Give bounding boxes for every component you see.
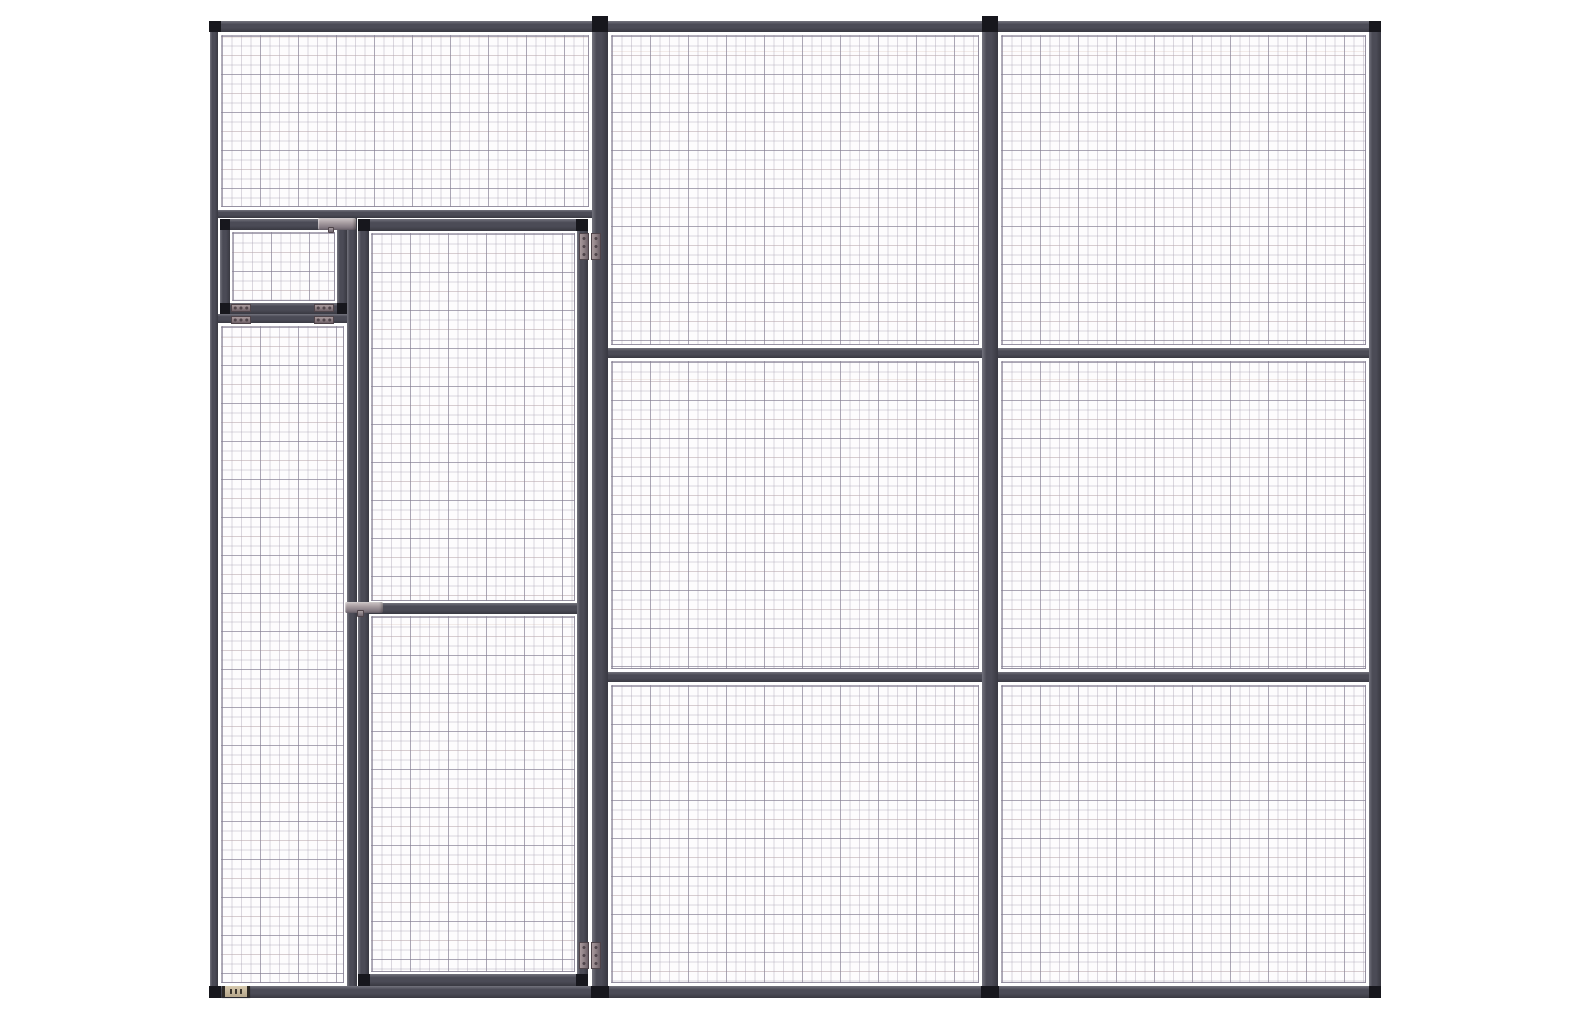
mesh-partition-scene: [0, 0, 1590, 1020]
right-bay-upper-rail: [998, 348, 1369, 358]
left-upright-post: [210, 21, 218, 998]
mid-bay-lower-rail: [608, 672, 982, 682]
hatch-right-hinge-leaf-b: [314, 316, 334, 324]
top-rail: [210, 21, 1381, 32]
door-right-stile: [577, 219, 588, 986]
hatch-bottom-right-corner-block: [337, 303, 347, 314]
hatch-right-hinge-leaf-a: [314, 304, 334, 312]
right-bay-bottom-mesh-panel: [1001, 685, 1366, 983]
hatch-mesh-panel: [232, 232, 335, 301]
bottom-rail: [210, 986, 1381, 998]
door-bottom-left-corner-block: [358, 974, 370, 986]
left-bay-top-mesh-panel: [221, 35, 589, 207]
mid-bay-upper-rail: [608, 348, 982, 358]
center-post-top-cap: [982, 16, 998, 32]
center-post-foot-block: [981, 986, 999, 998]
left-bay-transom-rail: [218, 210, 592, 218]
door-side-post: [592, 19, 608, 998]
mid-bay-bottom-mesh-panel: [611, 685, 979, 983]
door-post-foot-block: [591, 986, 609, 998]
door-bottom-hinge-leaf-b: [591, 942, 601, 969]
hatch-left-hinge-leaf-b: [231, 316, 251, 324]
hatch-left-hinge-leaf-a: [231, 304, 251, 312]
door-top-right-corner-block: [576, 219, 588, 231]
door-latch-knob: [357, 610, 364, 617]
hatch-right-hinge: [314, 304, 334, 324]
door-lower-mesh-panel: [371, 616, 575, 972]
door-top-hinge-leaf-b: [591, 233, 601, 260]
door-top-hinge-leaf-a: [579, 233, 589, 260]
right-bay-top-mesh-panel: [1001, 35, 1366, 345]
right-bay-middle-mesh-panel: [1001, 361, 1366, 669]
door-bottom-hinge-leaf-a: [579, 942, 589, 969]
door-upper-mesh-panel: [371, 233, 575, 601]
door-top-left-corner-block: [358, 219, 370, 231]
door-bottom-right-corner-block: [576, 974, 588, 986]
hatch-right-stile: [337, 219, 347, 314]
hatch-latch-knob: [328, 227, 334, 233]
center-post: [982, 19, 998, 998]
right-upright-post: [1369, 21, 1381, 998]
door-bottom-rail: [358, 974, 588, 986]
manufacturer-nameplate: [222, 986, 250, 997]
mid-bay-middle-mesh-panel: [611, 361, 979, 669]
bottom-left-corner-block: [209, 986, 221, 998]
bottom-right-corner-block: [1369, 986, 1381, 998]
door-latch-bolt: [345, 602, 383, 613]
hatch-top-left-corner-block: [220, 219, 230, 230]
door-post-top-cap: [592, 16, 608, 32]
top-right-corner-block: [1369, 21, 1381, 32]
left-column-mesh-panel: [221, 326, 344, 983]
door-bottom-hinge: [579, 942, 601, 969]
hatch-latch-bolt: [318, 218, 356, 230]
right-bay-lower-rail: [998, 672, 1369, 682]
door-mid-rail: [358, 603, 588, 614]
door-top-rail: [358, 219, 588, 231]
top-left-corner-block: [209, 21, 221, 32]
door-top-hinge: [579, 233, 601, 260]
hatch-left-stile: [220, 219, 230, 314]
mid-bay-top-mesh-panel: [611, 35, 979, 345]
hatch-bottom-left-corner-block: [220, 303, 230, 314]
hatch-left-hinge: [231, 304, 251, 324]
